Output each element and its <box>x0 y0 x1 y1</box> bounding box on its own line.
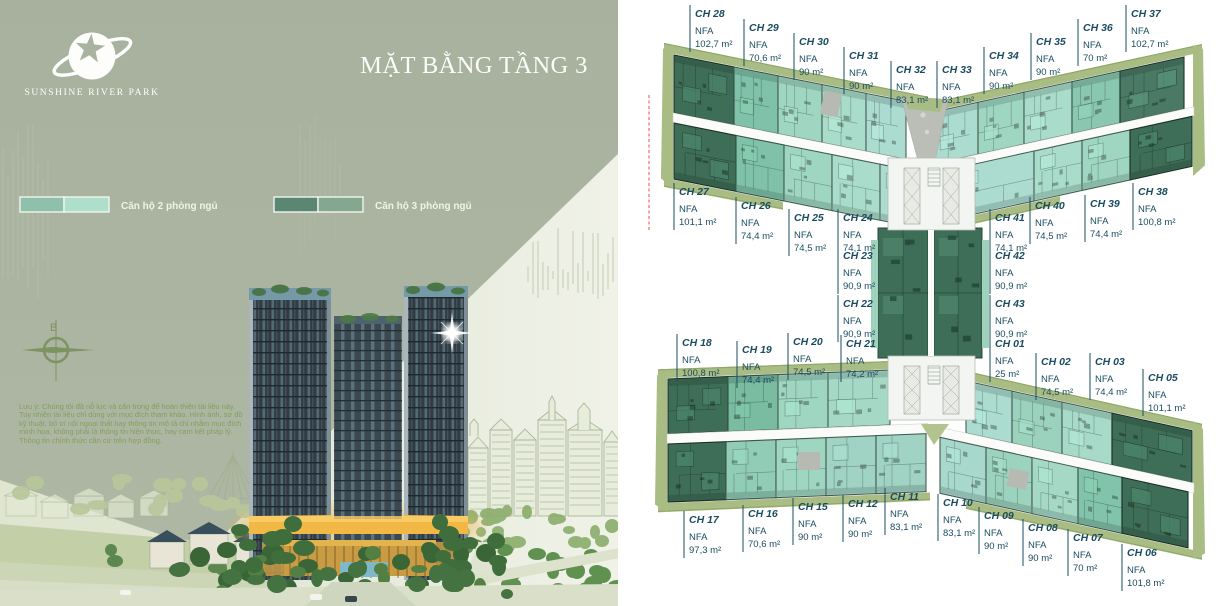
svg-text:70,6 m²: 70,6 m² <box>748 539 780 550</box>
svg-text:74,5 m²: 74,5 m² <box>1041 387 1073 398</box>
svg-text:NFA: NFA <box>995 316 1014 327</box>
svg-text:CH 24: CH 24 <box>843 212 873 224</box>
svg-text:CH 26: CH 26 <box>741 200 771 212</box>
svg-text:CH 19: CH 19 <box>742 344 772 356</box>
svg-text:97,3 m²: 97,3 m² <box>689 545 721 556</box>
svg-text:CH 07: CH 07 <box>1073 532 1104 544</box>
svg-text:NFA: NFA <box>689 532 708 543</box>
svg-text:25 m²: 25 m² <box>995 369 1019 380</box>
svg-text:NFA: NFA <box>794 230 813 241</box>
svg-text:74,5 m²: 74,5 m² <box>1035 231 1067 242</box>
svg-text:70 m²: 70 m² <box>1083 53 1107 64</box>
svg-text:CH 20: CH 20 <box>793 336 823 348</box>
svg-text:CH 03: CH 03 <box>1095 356 1125 368</box>
svg-text:CH 37: CH 37 <box>1131 8 1162 20</box>
svg-text:NFA: NFA <box>995 230 1014 241</box>
svg-text:CH 15: CH 15 <box>798 501 828 513</box>
svg-text:CH 33: CH 33 <box>942 64 972 76</box>
svg-text:90 m²: 90 m² <box>848 529 872 540</box>
svg-text:90 m²: 90 m² <box>984 541 1008 552</box>
svg-text:NFA: NFA <box>679 204 698 215</box>
svg-text:101,1 m²: 101,1 m² <box>1148 403 1186 414</box>
svg-text:70,6 m²: 70,6 m² <box>749 53 781 64</box>
svg-text:CH 39: CH 39 <box>1090 198 1120 210</box>
svg-text:CH 28: CH 28 <box>695 8 725 20</box>
svg-text:NFA: NFA <box>843 316 862 327</box>
svg-text:CH 35: CH 35 <box>1036 36 1066 48</box>
svg-text:NFA: NFA <box>1138 204 1157 215</box>
svg-text:NFA: NFA <box>943 515 962 526</box>
svg-text:NFA: NFA <box>799 54 818 65</box>
svg-text:CH 06: CH 06 <box>1127 547 1157 559</box>
svg-text:CH 16: CH 16 <box>748 508 778 520</box>
svg-text:74,2 m²: 74,2 m² <box>846 369 878 380</box>
svg-text:NFA: NFA <box>1036 54 1055 65</box>
svg-text:CH 34: CH 34 <box>989 50 1019 62</box>
svg-text:70 m²: 70 m² <box>1073 563 1097 574</box>
svg-text:83,1 m²: 83,1 m² <box>890 522 922 533</box>
svg-text:100,8 m²: 100,8 m² <box>682 368 720 379</box>
svg-text:NFA: NFA <box>748 526 767 537</box>
svg-text:90 m²: 90 m² <box>849 81 873 92</box>
svg-text:CH 25: CH 25 <box>794 212 824 224</box>
svg-text:74,5 m²: 74,5 m² <box>794 243 826 254</box>
svg-text:CH 29: CH 29 <box>749 22 779 34</box>
svg-text:CH 10: CH 10 <box>943 497 973 509</box>
svg-text:NFA: NFA <box>1095 374 1114 385</box>
svg-text:NFA: NFA <box>1073 550 1092 561</box>
svg-text:Căn hộ 2 phòng ngủ: Căn hộ 2 phòng ngủ <box>121 201 218 212</box>
svg-text:NFA: NFA <box>1028 540 1047 551</box>
svg-text:NFA: NFA <box>848 516 867 527</box>
svg-text:NFA: NFA <box>749 40 768 51</box>
svg-text:CH 42: CH 42 <box>995 250 1025 262</box>
svg-text:74,4 m²: 74,4 m² <box>742 375 774 386</box>
svg-text:CH 32: CH 32 <box>896 64 926 76</box>
svg-text:CH 41: CH 41 <box>995 212 1025 224</box>
svg-text:CH 01: CH 01 <box>995 338 1025 350</box>
svg-text:90,9 m²: 90,9 m² <box>995 281 1027 292</box>
svg-text:NFA: NFA <box>1041 374 1060 385</box>
svg-text:CH 12: CH 12 <box>848 498 878 510</box>
svg-text:NFA: NFA <box>890 509 909 520</box>
svg-text:102,7 m²: 102,7 m² <box>1131 39 1169 50</box>
svg-text:CH 38: CH 38 <box>1138 186 1168 198</box>
svg-text:CH 36: CH 36 <box>1083 22 1113 34</box>
svg-text:NFA: NFA <box>798 519 817 530</box>
svg-text:CH 17: CH 17 <box>689 514 720 526</box>
svg-text:90 m²: 90 m² <box>1036 67 1060 78</box>
svg-text:NFA: NFA <box>742 362 761 373</box>
svg-text:90 m²: 90 m² <box>989 81 1013 92</box>
svg-text:MẶT BẰNG TẦNG 3: MẶT BẰNG TẦNG 3 <box>360 50 588 79</box>
svg-text:74,5 m²: 74,5 m² <box>793 367 825 378</box>
svg-text:NFA: NFA <box>942 82 961 93</box>
svg-text:Thông tin chính thức căn cứ tr: Thông tin chính thức căn cứ trên hợp đồn… <box>19 436 162 445</box>
svg-text:NFA: NFA <box>846 356 865 367</box>
svg-text:83,1 m²: 83,1 m² <box>943 528 975 539</box>
svg-text:100,8 m²: 100,8 m² <box>1138 217 1176 228</box>
svg-text:NFA: NFA <box>741 218 760 229</box>
svg-text:90 m²: 90 m² <box>799 67 823 78</box>
svg-text:83,1 m²: 83,1 m² <box>896 95 928 106</box>
svg-text:NFA: NFA <box>1127 565 1146 576</box>
svg-text:NFA: NFA <box>1131 26 1150 37</box>
svg-text:74,4 m²: 74,4 m² <box>1090 229 1122 240</box>
svg-text:CH 43: CH 43 <box>995 298 1025 310</box>
svg-text:CH 18: CH 18 <box>682 337 712 349</box>
svg-text:SUNSHINE RIVER PARK: SUNSHINE RIVER PARK <box>24 88 159 98</box>
svg-text:NFA: NFA <box>1090 216 1109 227</box>
svg-text:NFA: NFA <box>793 354 812 365</box>
svg-text:CH 22: CH 22 <box>843 298 873 310</box>
svg-text:NFA: NFA <box>1148 390 1167 401</box>
svg-text:90 m²: 90 m² <box>1028 553 1052 564</box>
svg-text:74,4 m²: 74,4 m² <box>1095 387 1127 398</box>
svg-text:CH 40: CH 40 <box>1035 200 1065 212</box>
svg-text:NFA: NFA <box>984 528 1003 539</box>
svg-text:83,1 m²: 83,1 m² <box>942 95 974 106</box>
svg-text:CH 11: CH 11 <box>890 491 919 503</box>
svg-text:CH 31: CH 31 <box>849 50 879 62</box>
svg-text:101,8 m²: 101,8 m² <box>1127 578 1165 589</box>
svg-text:CH 05: CH 05 <box>1148 372 1178 384</box>
svg-text:Tuy nhiên tài liệu chỉ dùng vớ: Tuy nhiên tài liệu chỉ dùng với mục đích… <box>19 410 242 419</box>
svg-text:NFA: NFA <box>989 68 1008 79</box>
svg-text:NFA: NFA <box>843 230 862 241</box>
svg-text:90 m²: 90 m² <box>798 532 822 543</box>
svg-text:CH 02: CH 02 <box>1041 356 1071 368</box>
svg-text:NFA: NFA <box>695 26 714 37</box>
svg-text:CH 09: CH 09 <box>984 510 1014 522</box>
svg-text:minh họa, không phải là thông: minh họa, không phải là thông tin hiện t… <box>19 427 233 436</box>
svg-text:NFA: NFA <box>682 355 701 366</box>
svg-text:CH 30: CH 30 <box>799 36 829 48</box>
svg-text:Căn hộ 3 phòng ngủ: Căn hộ 3 phòng ngủ <box>375 201 472 212</box>
svg-text:102,7 m²: 102,7 m² <box>695 39 733 50</box>
svg-text:CH 21: CH 21 <box>846 338 876 350</box>
svg-text:CH 27: CH 27 <box>679 186 710 198</box>
svg-text:NFA: NFA <box>1035 218 1054 229</box>
svg-text:90,9 m²: 90,9 m² <box>843 281 875 292</box>
svg-text:CH 08: CH 08 <box>1028 522 1058 534</box>
svg-text:101,1 m²: 101,1 m² <box>679 217 717 228</box>
svg-text:NFA: NFA <box>896 82 915 93</box>
svg-text:NFA: NFA <box>995 356 1014 367</box>
svg-text:NFA: NFA <box>995 268 1014 279</box>
svg-text:CH 23: CH 23 <box>843 250 873 262</box>
svg-text:74,4 m²: 74,4 m² <box>741 231 773 242</box>
svg-text:NFA: NFA <box>849 68 868 79</box>
svg-text:NFA: NFA <box>1083 40 1102 51</box>
svg-text:NFA: NFA <box>843 268 862 279</box>
